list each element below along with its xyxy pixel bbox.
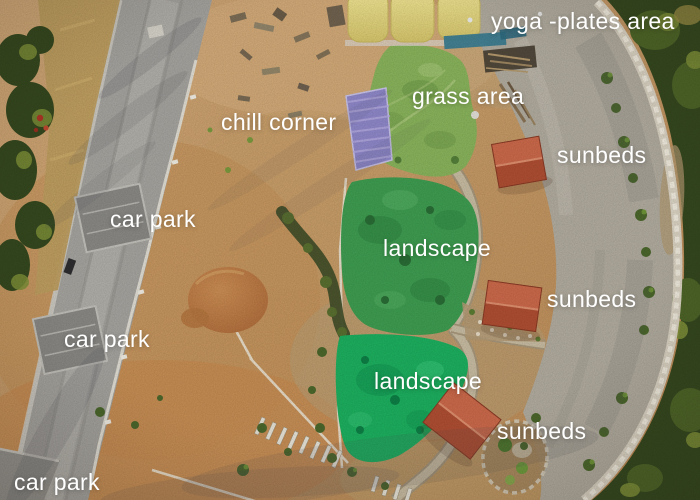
aerial-photo: yoga -plates area grass area chill corne… xyxy=(0,0,700,500)
label-landscape-2: landscape xyxy=(374,369,482,394)
label-car-park-1: car park xyxy=(110,207,196,232)
label-sunbeds-2: sunbeds xyxy=(547,287,636,312)
label-grass-area: grass area xyxy=(412,84,524,109)
aerial-photo-canvas xyxy=(0,0,700,500)
label-car-park-2: car park xyxy=(64,327,150,352)
label-sunbeds-3: sunbeds xyxy=(497,419,586,444)
label-sunbeds-1: sunbeds xyxy=(557,143,646,168)
label-yoga-plates-area: yoga -plates area xyxy=(491,9,675,34)
label-chill-corner: chill corner xyxy=(221,110,336,135)
label-landscape-1: landscape xyxy=(383,236,491,261)
label-car-park-3: car park xyxy=(14,470,100,495)
vignette xyxy=(0,0,700,500)
